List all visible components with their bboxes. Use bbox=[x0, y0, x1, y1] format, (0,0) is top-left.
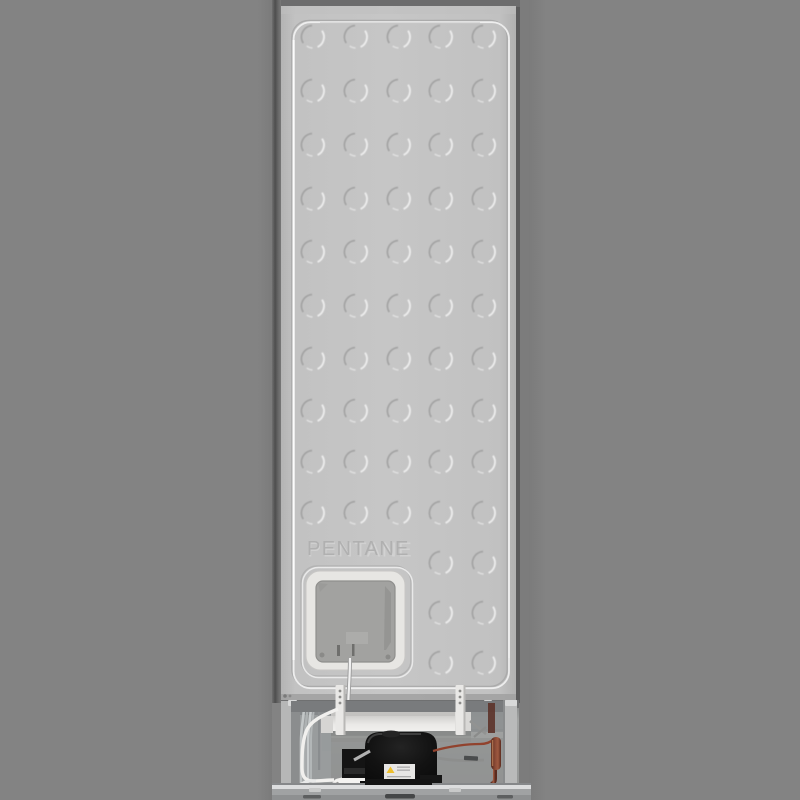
svg-text:PENTANE: PENTANE bbox=[307, 538, 410, 560]
